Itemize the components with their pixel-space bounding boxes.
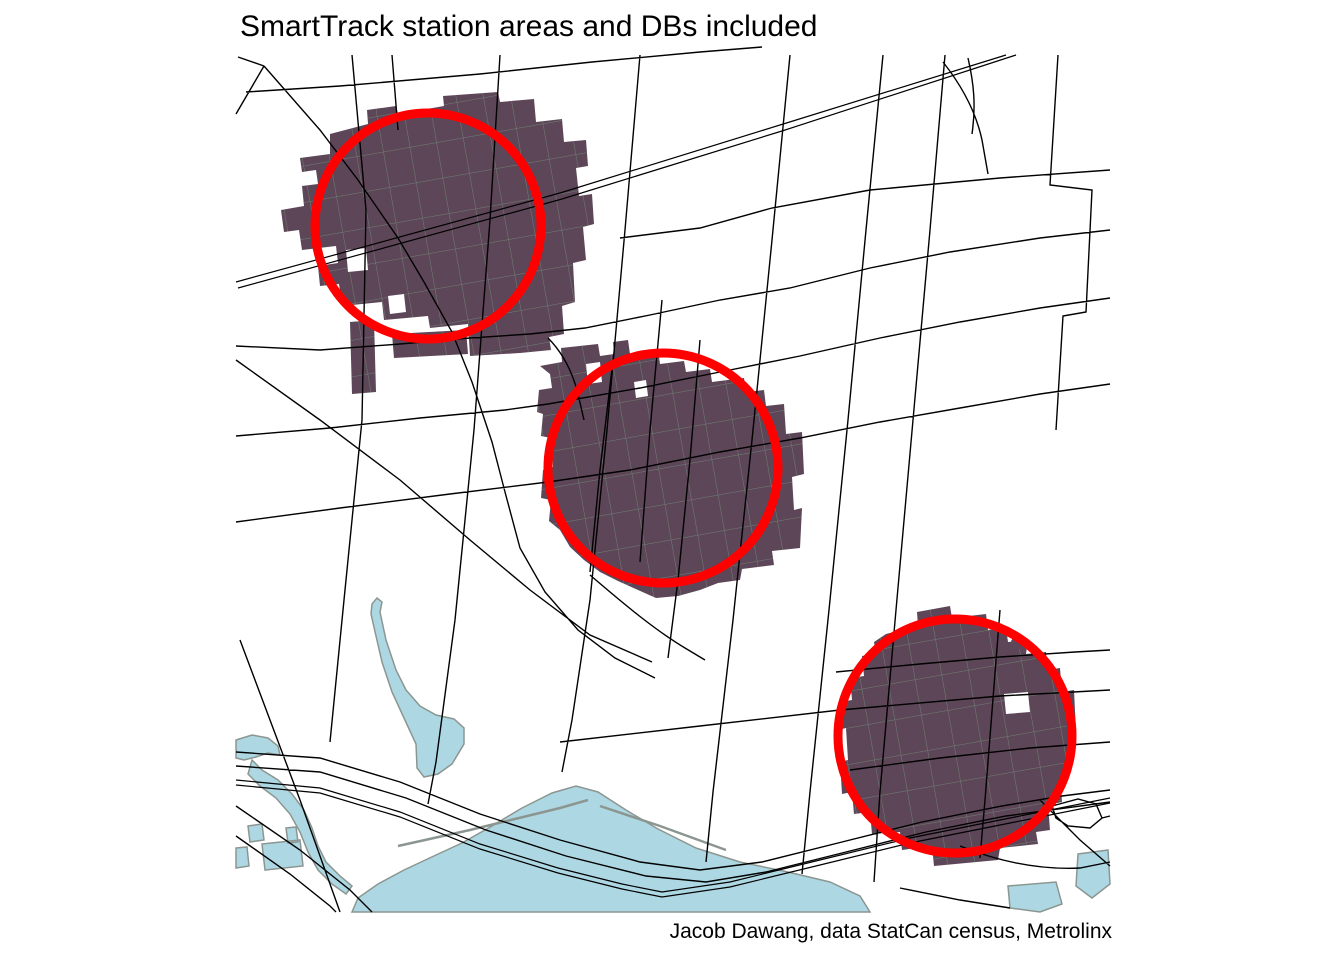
creek-polygon [371, 598, 464, 777]
map-canvas [0, 0, 1344, 960]
station-area-central-db-lines [537, 340, 804, 598]
inlet-polygon [236, 735, 280, 760]
station-area-southeast-db-lines [838, 606, 1076, 866]
station-area-layer [281, 92, 1076, 866]
pond-polygons [236, 824, 303, 870]
channel-polygon [248, 760, 352, 894]
harbour-patch-polygons [1008, 850, 1110, 912]
station-area-northwest-db-lines [281, 92, 594, 394]
lake-polygon [352, 786, 870, 912]
figure-caption: Jacob Dawang, data StatCan census, Metro… [670, 920, 1112, 944]
